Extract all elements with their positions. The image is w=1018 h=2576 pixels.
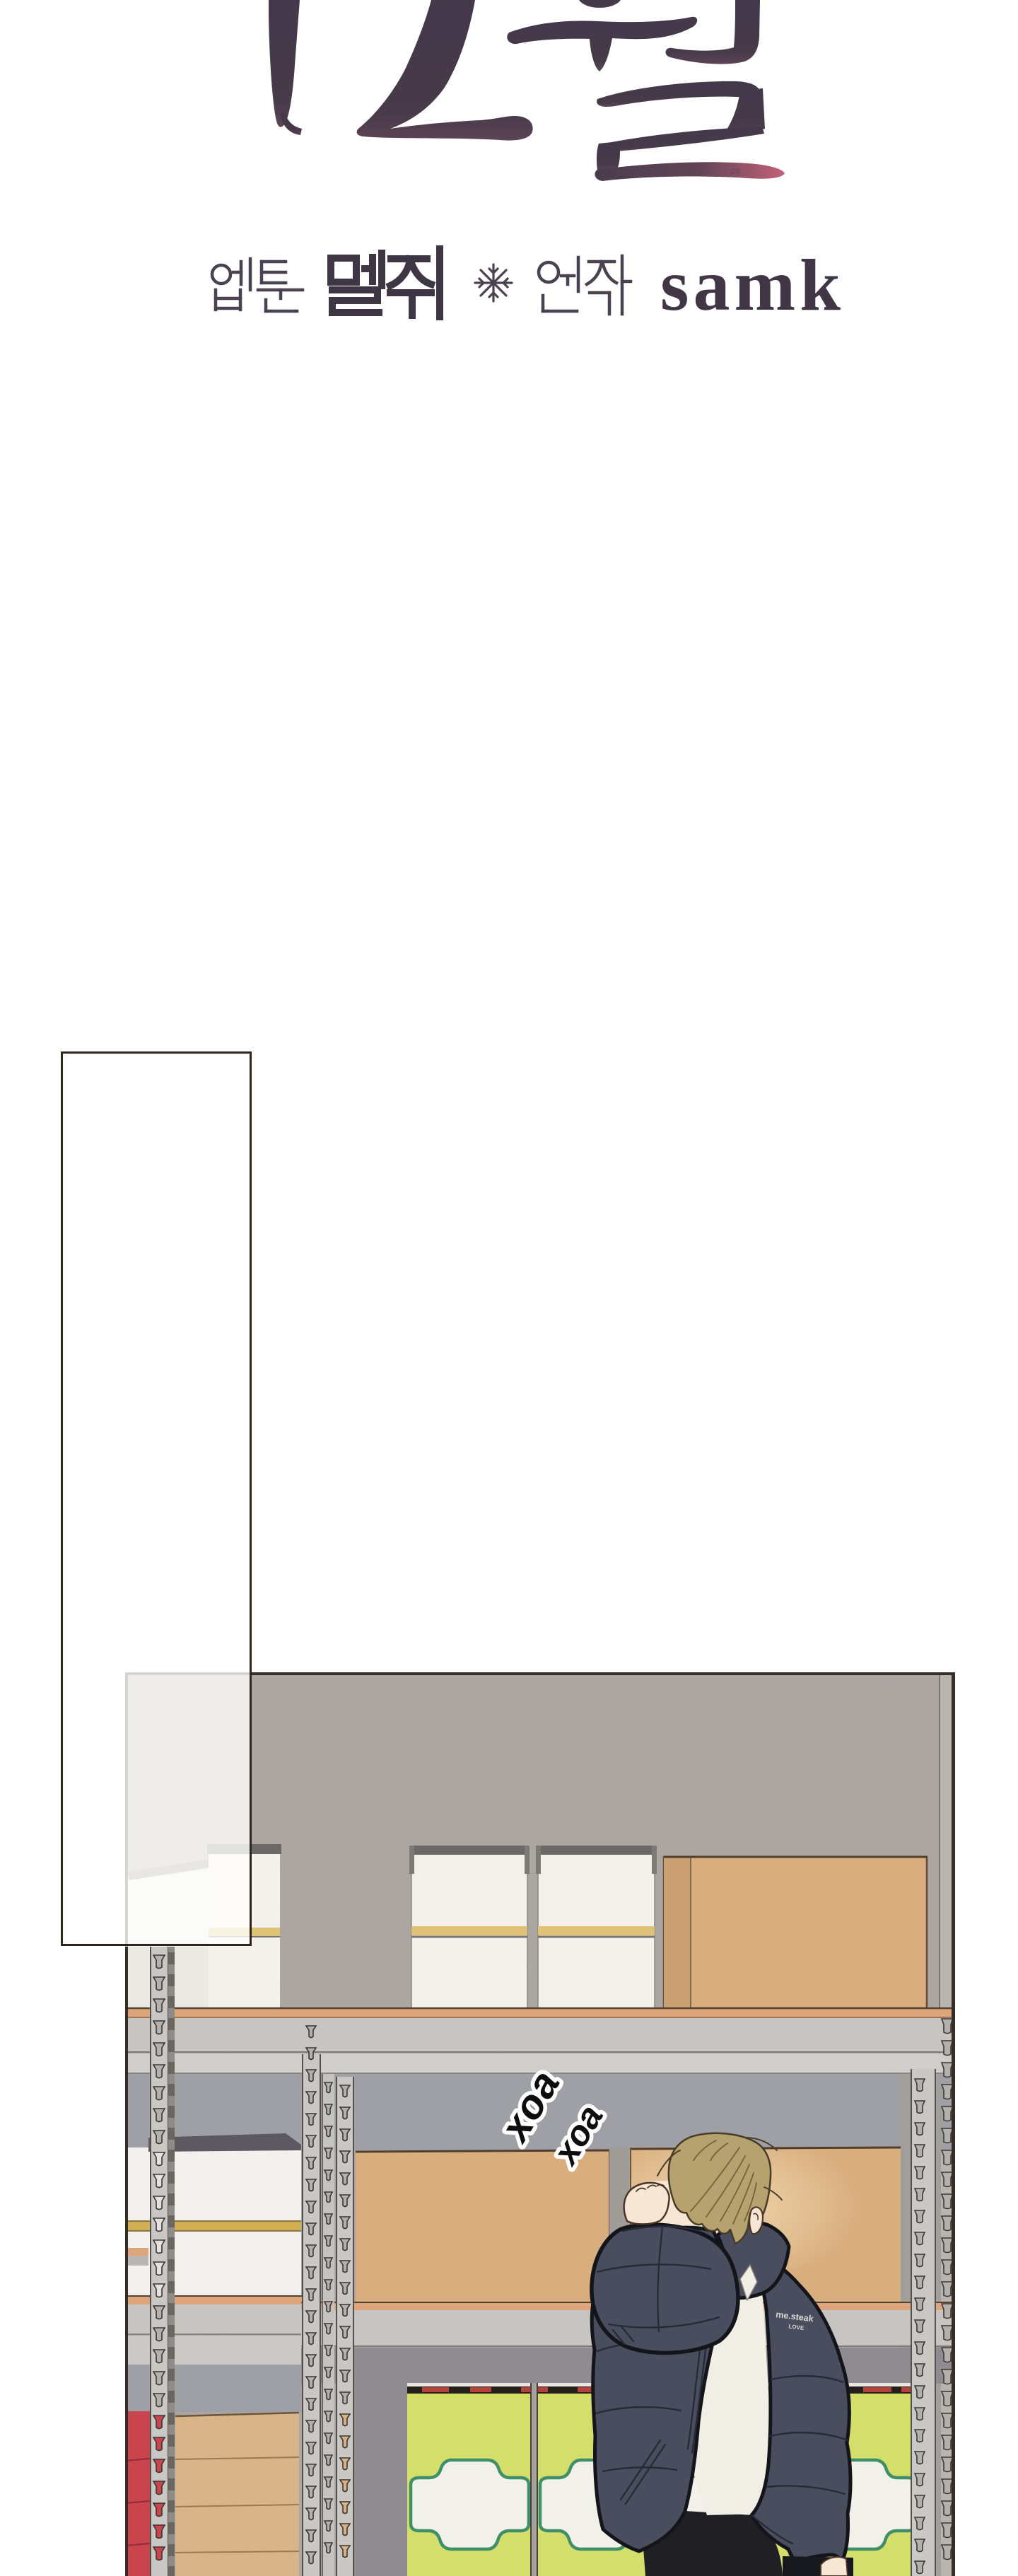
svg-text:samk: samk — [660, 245, 845, 326]
svg-text:28: 28 — [731, 168, 739, 176]
